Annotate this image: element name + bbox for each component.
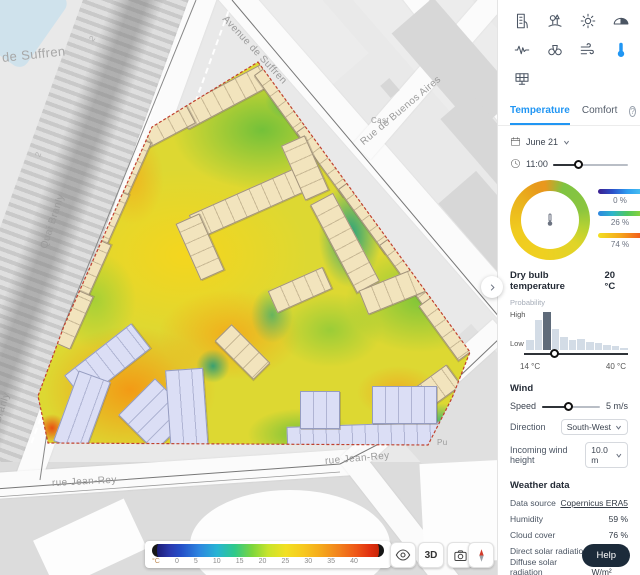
- analysis-sidebar: Temperature Comfort ? June 21 11:00 0 %: [497, 0, 640, 575]
- dry-bulb-row: Dry bulb temperature 20 °C: [510, 270, 628, 292]
- weather-row: Data sourceCopernicus ERA5: [510, 495, 628, 511]
- legend-chip-cold: [598, 189, 640, 194]
- solar-panel-tool-icon[interactable]: [512, 69, 531, 88]
- 3d-label: 3D: [425, 550, 438, 561]
- weather-row-value: 76 %: [609, 530, 628, 540]
- histogram-bar: [595, 343, 603, 350]
- visibility-button[interactable]: [390, 542, 416, 568]
- histogram-bars: [526, 310, 628, 350]
- wind-speed-value: 5 m/s: [606, 401, 628, 411]
- help-circle-icon[interactable]: ?: [629, 106, 635, 117]
- app-window: de Suffren Avenue de Suffren Rue de Buen…: [0, 0, 640, 575]
- site-building[interactable]: [359, 255, 457, 315]
- histogram-range: 14 °C 40 °C: [510, 360, 628, 371]
- scale-tick: 25: [282, 558, 290, 565]
- legend-value-hot: 74 %: [611, 240, 629, 249]
- wind-height-label: Incoming wind height: [510, 445, 580, 465]
- hist-low-label: Low: [510, 339, 524, 348]
- building-tool-icon[interactable]: [512, 11, 531, 30]
- time-row: 11:00: [510, 156, 628, 172]
- scale-tick: 40: [350, 558, 358, 565]
- camera-icon: [453, 548, 468, 563]
- eye-icon: [395, 547, 411, 563]
- histogram-bar: [535, 320, 543, 350]
- shade-dome-tool-icon[interactable]: [611, 11, 630, 30]
- legend-chip-mild: [598, 211, 640, 216]
- analysis-tabs: Temperature Comfort ?: [498, 98, 640, 126]
- compass-button[interactable]: [468, 542, 494, 568]
- site-building-residential[interactable]: [53, 370, 111, 452]
- weather-row-label: Data source: [510, 498, 556, 508]
- map-canvas[interactable]: de Suffren Avenue de Suffren Rue de Buen…: [0, 0, 497, 575]
- weather-row-label: Cloud cover: [510, 530, 555, 540]
- 3d-toggle-button[interactable]: 3D: [418, 542, 444, 568]
- site-building-residential[interactable]: [165, 368, 209, 455]
- scale-tick: 20: [259, 558, 267, 565]
- noise-tool-icon[interactable]: [512, 40, 531, 59]
- tool-grid: [510, 0, 628, 98]
- legend-chip-hot: [598, 233, 640, 238]
- histogram-bar: [560, 337, 568, 350]
- histogram-bar: [577, 339, 585, 350]
- park-tool-icon[interactable]: [545, 11, 564, 30]
- histogram-bar: [552, 329, 560, 350]
- hist-min-label: 14 °C: [520, 362, 540, 371]
- calendar-icon: [510, 136, 521, 149]
- donut-legend: 0 % 26 % 74 %: [598, 187, 640, 253]
- tab-temperature[interactable]: Temperature: [510, 98, 570, 125]
- weather-row-label: Humidity: [510, 514, 543, 524]
- site-building-residential[interactable]: [372, 386, 437, 424]
- temperature-distribution: 0 % 26 % 74 %: [510, 180, 628, 260]
- view-binoculars-tool-icon[interactable]: [545, 40, 564, 59]
- weather-section-title: Weather data: [510, 480, 628, 491]
- chevron-down-icon: [563, 139, 570, 146]
- time-slider[interactable]: [553, 158, 628, 170]
- histogram-bar: [526, 340, 534, 350]
- scale-unit: °C: [152, 558, 160, 565]
- wind-height-select[interactable]: 10.0 m: [585, 442, 628, 468]
- clock-icon: [510, 158, 521, 171]
- data-source-link[interactable]: Copernicus ERA5: [560, 498, 628, 508]
- sidebar-collapse-button[interactable]: [481, 276, 503, 298]
- histogram-bar: [586, 342, 594, 350]
- wind-direction-value: South-West: [567, 422, 611, 432]
- hist-high-label: High: [510, 310, 525, 319]
- weather-row-value: 59 %: [609, 514, 628, 524]
- temperature-scale-gradient[interactable]: [152, 544, 384, 557]
- time-value: 11:00: [526, 159, 548, 169]
- wind-height-value: 10.0 m: [591, 445, 612, 465]
- scale-tick: 30: [304, 558, 312, 565]
- street-label-rue-de-buenos-aires: Rue de Buenos Aires: [358, 74, 443, 148]
- wind-direction-select[interactable]: South-West: [561, 419, 628, 435]
- compass-north-icon: [474, 548, 489, 563]
- weather-row: Cloud cover76 %: [510, 527, 628, 543]
- wind-speed-slider[interactable]: [542, 400, 600, 412]
- histogram-bar: [569, 340, 577, 350]
- scale-tick: 5: [194, 558, 198, 565]
- date-value: June 21: [526, 137, 558, 147]
- scale-tick: 15: [236, 558, 244, 565]
- sun-tool-icon[interactable]: [578, 11, 597, 30]
- wind-height-row: Incoming wind height 10.0 m: [510, 442, 628, 468]
- chevron-down-icon: [615, 424, 622, 431]
- help-button[interactable]: Help: [582, 544, 630, 567]
- dry-bulb-label: Dry bulb temperature: [510, 270, 605, 292]
- wind-tool-icon[interactable]: [578, 40, 597, 59]
- hist-max-label: 40 °C: [606, 362, 626, 371]
- scale-tick: 0: [175, 558, 179, 565]
- scale-tick: 10: [213, 558, 221, 565]
- wind-direction-row: Direction South-West: [510, 419, 628, 435]
- dry-bulb-value: 20 °C: [605, 270, 628, 292]
- wind-speed-row: Speed 5 m/s: [510, 400, 628, 412]
- site-building[interactable]: [189, 167, 307, 239]
- wind-direction-label: Direction: [510, 422, 546, 432]
- site-building[interactable]: [215, 324, 271, 380]
- wind-speed-label: Speed: [510, 401, 536, 411]
- legend-value-mild: 26 %: [611, 218, 629, 227]
- chevron-down-icon: [616, 452, 622, 459]
- site-building[interactable]: [268, 267, 333, 313]
- temperature-donut-chart: [510, 180, 590, 260]
- tab-comfort[interactable]: Comfort: [582, 98, 618, 125]
- weather-row-label: Direct solar radiation: [510, 546, 588, 556]
- poi-label-cast: Cast: [371, 116, 389, 125]
- legend-value-cold: 0 %: [613, 196, 627, 205]
- histogram-slider[interactable]: [526, 350, 628, 360]
- date-picker[interactable]: June 21: [510, 134, 628, 150]
- probability-label: Probability: [510, 298, 628, 307]
- site-building-residential[interactable]: [300, 391, 340, 429]
- thermometer-tool-icon[interactable]: [611, 40, 630, 59]
- scale-tick: 35: [327, 558, 335, 565]
- temperature-histogram: High Low: [510, 310, 628, 360]
- thermometer-icon: [544, 213, 556, 227]
- wind-section-title: Wind: [510, 383, 628, 394]
- temperature-scale-ticks: °C 0510152025303540: [150, 558, 386, 565]
- poi-label-pu: Pu: [437, 438, 448, 447]
- histogram-bar: [543, 312, 551, 350]
- chevron-right-icon: [489, 284, 496, 291]
- weather-row: Humidity59 %: [510, 511, 628, 527]
